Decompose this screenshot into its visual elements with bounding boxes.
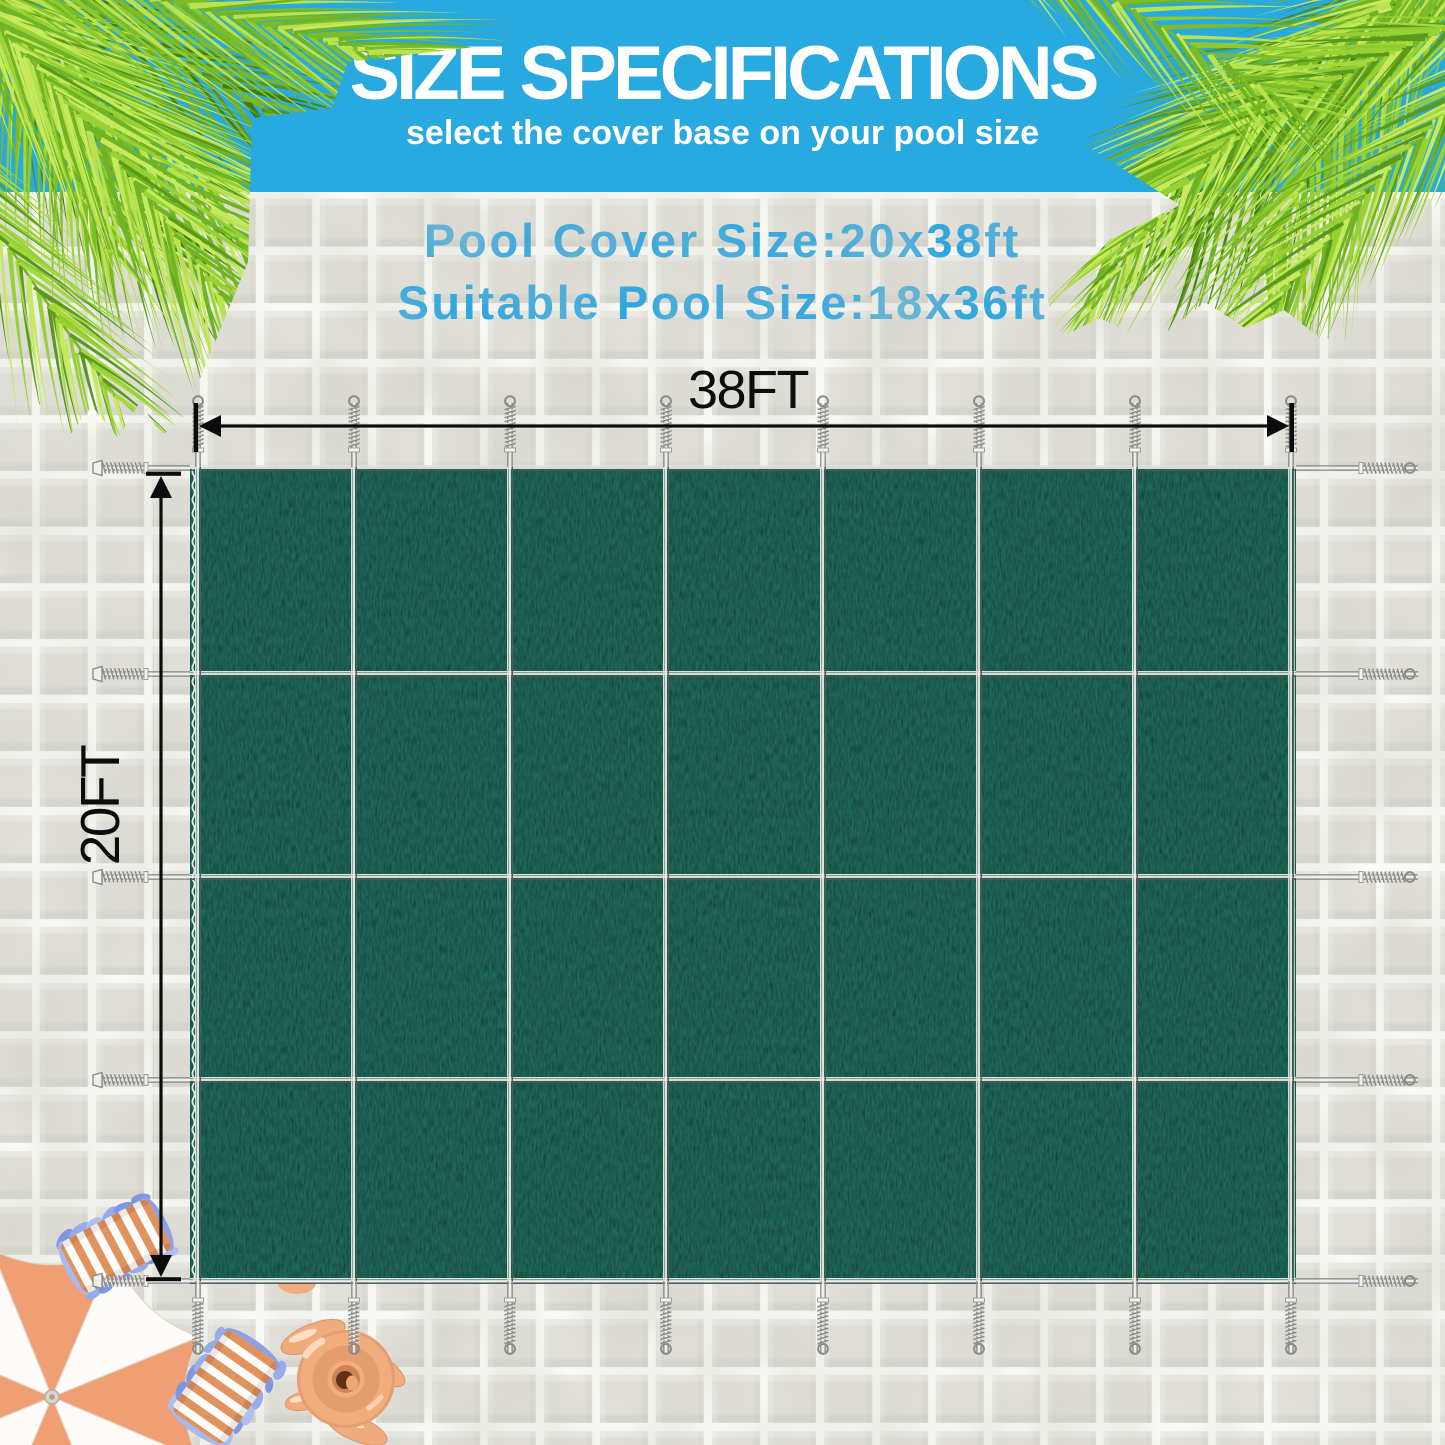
- svg-text:38FT: 38FT: [688, 360, 809, 420]
- svg-text:20FT: 20FT: [69, 745, 131, 865]
